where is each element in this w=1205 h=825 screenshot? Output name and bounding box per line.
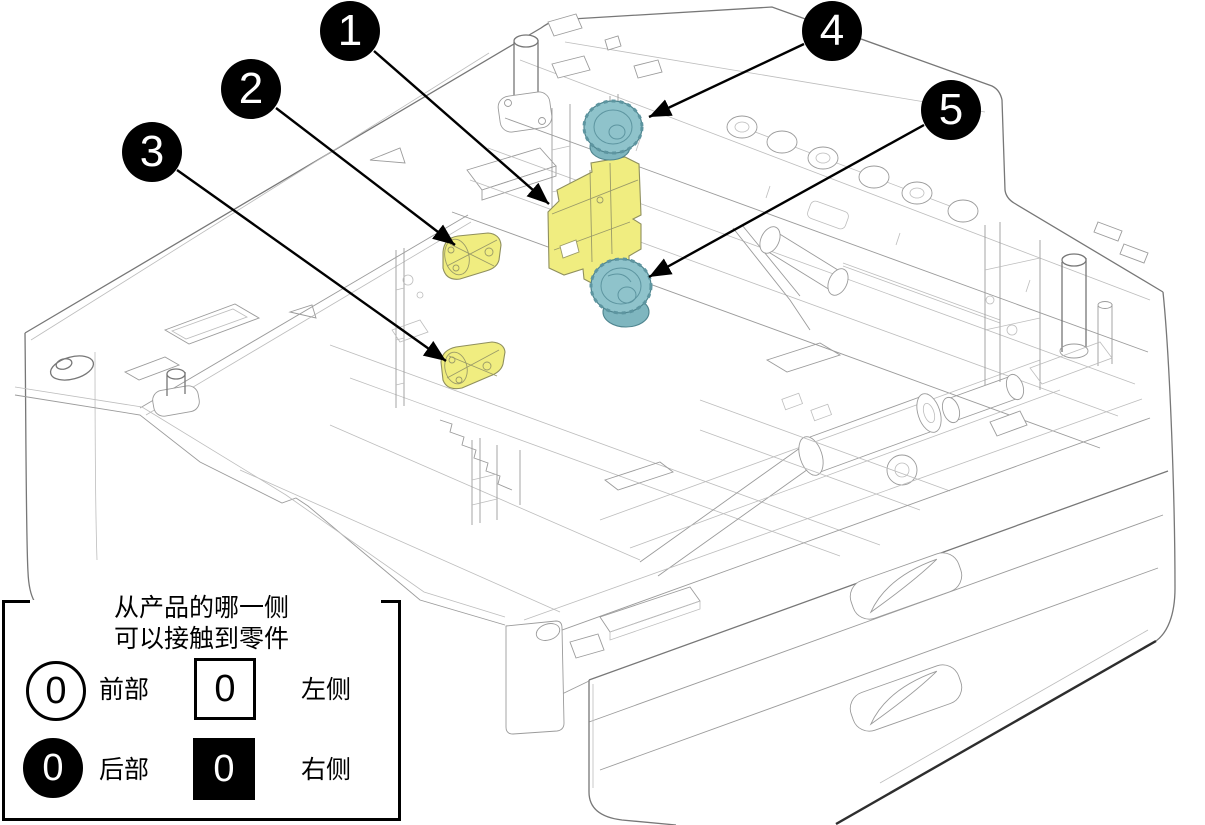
legend-label-front: 前部 <box>99 678 149 703</box>
legend-title-line2: 可以接触到零件 <box>5 624 398 655</box>
callout-marker-5: 5 <box>921 80 981 140</box>
legend-title: 从产品的哪一侧 可以接触到零件 <box>5 593 398 655</box>
printer-parts-diagram: 1 2 3 4 5 从产品的哪一侧 可以接触到零件 0 前部 0 左侧 0 后部… <box>0 0 1205 825</box>
callout-marker-3: 3 <box>122 122 182 182</box>
legend-symbol-right: 0 <box>193 738 255 800</box>
callout-number: 1 <box>338 9 362 53</box>
part-4-gear <box>584 101 642 160</box>
legend-label-left: 左侧 <box>301 678 351 703</box>
legend-box: 从产品的哪一侧 可以接触到零件 0 前部 0 左侧 0 后部 0 右侧 <box>2 600 401 821</box>
callout-number: 5 <box>939 88 963 132</box>
legend-symbol-rear: 0 <box>23 738 83 798</box>
right-tower <box>985 222 1112 390</box>
central-mechanism <box>472 224 1060 576</box>
legend-label-right: 右侧 <box>301 758 351 783</box>
part-5-gear <box>591 259 651 327</box>
legend-symbol-rear-value: 0 <box>42 749 63 787</box>
part-2-roller <box>442 233 501 279</box>
callout-number: 4 <box>820 9 844 53</box>
callout-arrow-4 <box>649 44 804 117</box>
legend-symbol-right-value: 0 <box>213 750 234 788</box>
legend-symbol-left-value: 0 <box>214 670 235 708</box>
front-corner-flap <box>506 621 564 734</box>
legend-label-rear: 后部 <box>99 758 149 783</box>
top-deck-details <box>15 148 556 625</box>
callout-number: 2 <box>239 67 263 111</box>
interior-rails <box>240 118 1148 612</box>
legend-symbol-front: 0 <box>26 661 86 721</box>
part-3-roller <box>441 342 505 389</box>
callout-number: 3 <box>140 130 164 174</box>
tray-handle-upper <box>846 548 967 624</box>
front-face <box>506 399 1168 825</box>
legend-symbol-front-value: 0 <box>45 672 66 710</box>
tray-handle-lower <box>846 660 967 736</box>
callout-marker-4: 4 <box>802 1 862 61</box>
callout-marker-2: 2 <box>221 59 281 119</box>
callout-marker-1: 1 <box>320 1 380 61</box>
callout-arrow-2 <box>276 108 455 245</box>
legend-title-line1: 从产品的哪一侧 <box>5 593 398 624</box>
legend-symbol-left: 0 <box>194 658 256 720</box>
